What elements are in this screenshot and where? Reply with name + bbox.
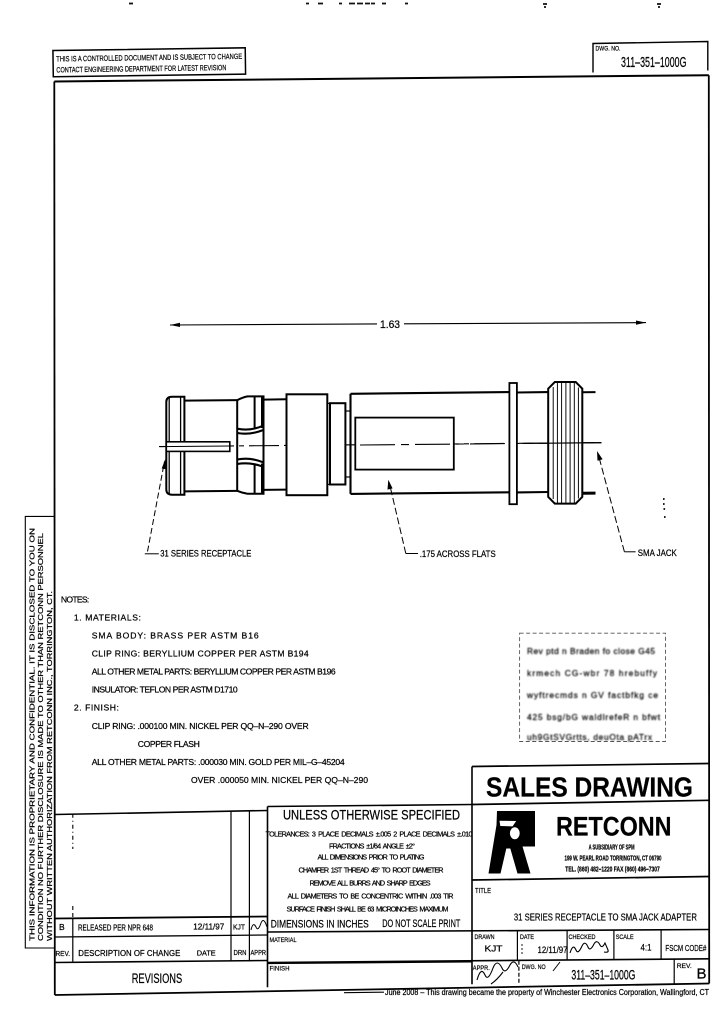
svg-text:199 W. PEARL ROAD TORRINGTON,: 199 W. PEARL ROAD TORRINGTON, CT 06790: [565, 856, 662, 863]
svg-text:B: B: [697, 966, 707, 983]
svg-text:DRN: DRN: [234, 950, 247, 957]
svg-text:425 bsg/bG waldlrefeR n bfwt: 425 bsg/bG waldlrefeR n bfwt: [527, 712, 661, 722]
svg-text:CLIP RING: BERYLLIUM COPPER PE: CLIP RING: BERYLLIUM COPPER PER ASTM B19…: [92, 649, 309, 659]
svg-text:DRAWN: DRAWN: [475, 934, 495, 941]
svg-text:CLIP RING: .000100 MIN. NICKEL: CLIP RING: .000100 MIN. NICKEL PER QQ–N–…: [92, 721, 309, 731]
svg-text:WITHOUT WRITTEN AUTHORIZATION: WITHOUT WRITTEN AUTHORIZATION FROM RETCO…: [45, 591, 54, 941]
svg-text:SURFACE FINISH SHALL BE 63 MIC: SURFACE FINISH SHALL BE 63 MICROINCHES M…: [287, 905, 449, 914]
svg-text:DATE: DATE: [520, 934, 534, 941]
svg-text:KJT: KJT: [485, 944, 503, 954]
svg-text:311–351–1000G: 311–351–1000G: [621, 54, 687, 71]
svg-text:DWG. NO: DWG. NO: [522, 964, 546, 971]
svg-text:OVER .000050 MIN. NICKEL PER Q: OVER .000050 MIN. NICKEL PER QQ–N–290: [191, 775, 368, 785]
svg-text:1.63: 1.63: [380, 319, 400, 331]
svg-text:TEL. (860) 482–1220 FAX (860): TEL. (860) 482–1220 FAX (860) 496–7307: [565, 867, 660, 874]
svg-text:DESCRIPTION OF CHANGE: DESCRIPTION OF CHANGE: [78, 949, 180, 958]
svg-text:SMA JACK: SMA JACK: [638, 548, 677, 558]
svg-text:CHAMFER 1ST THREAD 45° TO ROOT: CHAMFER 1ST THREAD 45° TO ROOT DIAMETER: [299, 866, 444, 875]
svg-text:31 SERIES RECEPTACLE TO SMA JA: 31 SERIES RECEPTACLE TO SMA JACK ADAPTER: [514, 912, 697, 924]
svg-text:SMA BODY: BRASS PER ASTM B16: SMA BODY: BRASS PER ASTM B16: [92, 631, 259, 641]
svg-text:APPR.: APPR.: [473, 965, 490, 972]
svg-text:wyftrecmds n GV factbfkg ce: wyftrecmds n GV factbfkg ce: [526, 690, 658, 700]
svg-text:DO NOT SCALE PRINT: DO NOT SCALE PRINT: [382, 918, 460, 930]
svg-text:UNLESS OTHERWISE SPECIFIED: UNLESS OTHERWISE SPECIFIED: [283, 807, 460, 823]
svg-text:A SUBSIDIARY OF SPM: A SUBSIDIARY OF SPM: [589, 845, 635, 852]
svg-text:COPPER FLASH: COPPER FLASH: [138, 739, 200, 749]
svg-text:uh9GtSVGrtts, deuOta pATrx: uh9GtSVGrtts, deuOta pATrx: [527, 732, 653, 742]
svg-text:ALL DIAMETERS TO BE CONCENTRIC: ALL DIAMETERS TO BE CONCENTRIC WITHIN .0…: [288, 892, 454, 901]
svg-text:.175 ACROSS FLATS: .175 ACROSS FLATS: [420, 549, 496, 559]
svg-text:Rev ptd n Braden fo close G45: Rev ptd n Braden fo close G45: [527, 646, 655, 656]
svg-text:TITLE: TITLE: [475, 888, 491, 895]
svg-text:ALL OTHER METAL PARTS: .000030: ALL OTHER METAL PARTS: .000030 MIN. GOLD…: [92, 757, 345, 767]
svg-text:SALES DRAWING: SALES DRAWING: [486, 772, 693, 803]
svg-text:31 SERIES RECEPTACLE: 31 SERIES RECEPTACLE: [160, 549, 251, 559]
svg-text:APPR: APPR: [251, 950, 267, 957]
svg-text:FINISH: FINISH: [270, 966, 290, 973]
svg-text:SCALE: SCALE: [616, 934, 634, 941]
svg-text:REV.: REV.: [677, 963, 692, 970]
svg-text:B: B: [59, 922, 65, 932]
svg-text:4:1: 4:1: [641, 943, 652, 953]
svg-text:RETCONN: RETCONN: [556, 812, 672, 842]
svg-text:12/11/97: 12/11/97: [538, 945, 568, 956]
svg-text:ALL OTHER METAL PARTS: BERYLLI: ALL OTHER METAL PARTS: BERYLLIUM COPPER …: [92, 667, 336, 677]
svg-text:DIMENSIONS IN INCHES: DIMENSIONS IN INCHES: [271, 919, 369, 931]
svg-text:ALL DIMENSIONS PRIOR TO PLATIN: ALL DIMENSIONS PRIOR TO PLATING: [318, 853, 425, 862]
svg-text:311–351–1000G: 311–351–1000G: [571, 967, 635, 983]
svg-text:RELEASED PER NPR 648: RELEASED PER NPR 648: [78, 924, 153, 933]
svg-text:krmech CG-wbr 78 hrebuffy: krmech CG-wbr 78 hrebuffy: [527, 668, 658, 678]
svg-text:2. FINISH:: 2. FINISH:: [74, 703, 119, 713]
svg-text:FSCM CODE#: FSCM CODE#: [665, 943, 706, 953]
svg-text:REV.: REV.: [56, 951, 71, 958]
svg-text:12/11/97: 12/11/97: [193, 923, 225, 932]
svg-text:NOTES:: NOTES:: [61, 595, 89, 605]
svg-text:CHECKED: CHECKED: [569, 934, 596, 941]
svg-text:1. MATERIALS:: 1. MATERIALS:: [74, 613, 141, 623]
svg-text:REMOVE ALL BURRS AND SHARP EDG: REMOVE ALL BURRS AND SHARP EDGES: [310, 879, 431, 888]
svg-text:June 2008 – This drawing becam: June 2008 – This drawing became the prop…: [385, 988, 709, 997]
svg-text:DATE: DATE: [197, 949, 216, 958]
svg-text:INSULATOR: TEFLON PER ASTM D17: INSULATOR: TEFLON PER ASTM D1710: [92, 685, 238, 695]
svg-text:DWG. NO.: DWG. NO.: [596, 46, 621, 53]
svg-text:REVISIONS: REVISIONS: [132, 971, 183, 986]
svg-text:TOLERANCES: 3 PLACE DECIMALS ±: TOLERANCES: 3 PLACE DECIMALS ±.005 2 PLA…: [266, 830, 473, 839]
svg-text:KJT: KJT: [233, 923, 245, 932]
svg-text:MATERIAL: MATERIAL: [270, 937, 297, 944]
svg-text:FRACTIONS ±1/64 ANGLE ±2°: FRACTIONS ±1/64 ANGLE ±2°: [329, 842, 415, 851]
